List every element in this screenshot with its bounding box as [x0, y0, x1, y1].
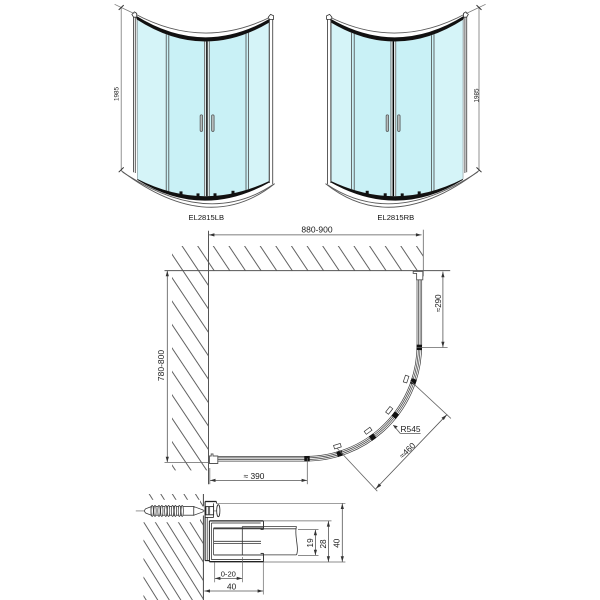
svg-text:40: 40 [227, 582, 237, 591]
svg-text:≈460: ≈460 [397, 440, 417, 460]
svg-text:780-800: 780-800 [156, 350, 166, 381]
svg-text:≈ 390: ≈ 390 [244, 471, 265, 481]
svg-text:0-20: 0-20 [221, 570, 236, 579]
svg-text:≈290: ≈290 [434, 294, 443, 312]
svg-text:28: 28 [319, 539, 328, 549]
svg-text:19: 19 [306, 538, 315, 548]
svg-text:R545: R545 [400, 424, 420, 434]
svg-text:880-900: 880-900 [301, 225, 332, 235]
svg-text:40: 40 [333, 538, 342, 548]
svg-text:EL2815RB: EL2815RB [377, 213, 414, 222]
svg-text:1985: 1985 [474, 88, 481, 103]
svg-text:EL2815LB: EL2815LB [189, 213, 224, 222]
svg-text:1985: 1985 [114, 87, 121, 102]
